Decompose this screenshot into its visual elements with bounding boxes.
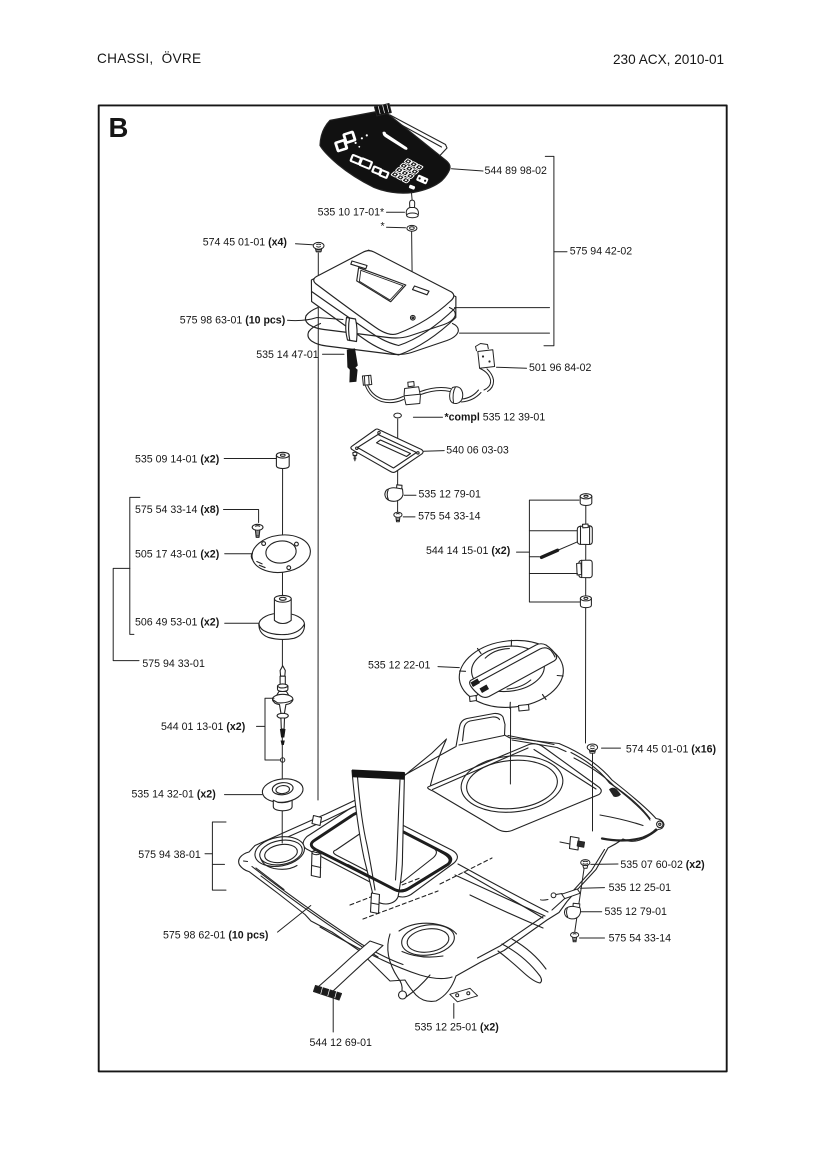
svg-text:501 96 84-02: 501 96 84-02 — [529, 362, 592, 374]
svg-text:B: B — [109, 112, 129, 143]
svg-text:574 45 01-01 (x16): 574 45 01-01 (x16) — [626, 743, 716, 755]
svg-text:535 12 22-01: 535 12 22-01 — [368, 659, 431, 671]
svg-text:*: * — [381, 221, 385, 233]
svg-text:535 12 25-01 (x2): 535 12 25-01 (x2) — [415, 1022, 499, 1034]
svg-text:574 45 01-01 (x4): 574 45 01-01 (x4) — [203, 237, 287, 249]
svg-text:575 94 42-02: 575 94 42-02 — [570, 246, 633, 258]
svg-text:575 98 62-01 (10 pcs): 575 98 62-01 (10 pcs) — [163, 930, 268, 942]
svg-text:535 12 25-01: 535 12 25-01 — [609, 882, 672, 894]
svg-text:230 ACX, 2010-01: 230 ACX, 2010-01 — [613, 52, 724, 67]
svg-text:544 14 15-01 (x2): 544 14 15-01 (x2) — [426, 545, 510, 557]
svg-text:540 06 03-03: 540 06 03-03 — [446, 444, 509, 456]
svg-text:575 54 33-14: 575 54 33-14 — [418, 510, 481, 522]
svg-text:505 17 43-01 (x2): 505 17 43-01 (x2) — [135, 548, 219, 560]
svg-text:506 49 53-01 (x2): 506 49 53-01 (x2) — [135, 617, 219, 629]
svg-text:544 89 98-02: 544 89 98-02 — [485, 165, 548, 177]
svg-text:575 98 63-01 (10 pcs): 575 98 63-01 (10 pcs) — [180, 315, 285, 327]
svg-text:535 09 14-01 (x2): 535 09 14-01 (x2) — [135, 453, 219, 465]
svg-text:535 14 32-01 (x2): 535 14 32-01 (x2) — [132, 789, 216, 801]
svg-text:535 07 60-02 (x2): 535 07 60-02 (x2) — [620, 859, 704, 871]
svg-text:535 14 47-01: 535 14 47-01 — [256, 349, 319, 361]
svg-text:535 10 17-01*: 535 10 17-01* — [318, 206, 385, 218]
svg-text:575 94 38-01: 575 94 38-01 — [138, 849, 201, 861]
svg-text:575 94 33-01: 575 94 33-01 — [142, 658, 205, 670]
svg-text:544 01 13-01 (x2): 544 01 13-01 (x2) — [161, 721, 245, 733]
svg-text:535 12 79-01: 535 12 79-01 — [605, 906, 668, 918]
svg-text:CHASSI, ÖVRE: CHASSI, ÖVRE — [97, 51, 201, 66]
svg-text:535 12 79-01: 535 12 79-01 — [419, 489, 482, 501]
svg-text:575 54 33-14 (x8): 575 54 33-14 (x8) — [135, 504, 219, 516]
svg-text:544 12 69-01: 544 12 69-01 — [310, 1037, 373, 1049]
svg-text:575 54 33-14: 575 54 33-14 — [609, 933, 672, 945]
svg-text:*compl 535 12 39-01: *compl 535 12 39-01 — [445, 412, 546, 424]
